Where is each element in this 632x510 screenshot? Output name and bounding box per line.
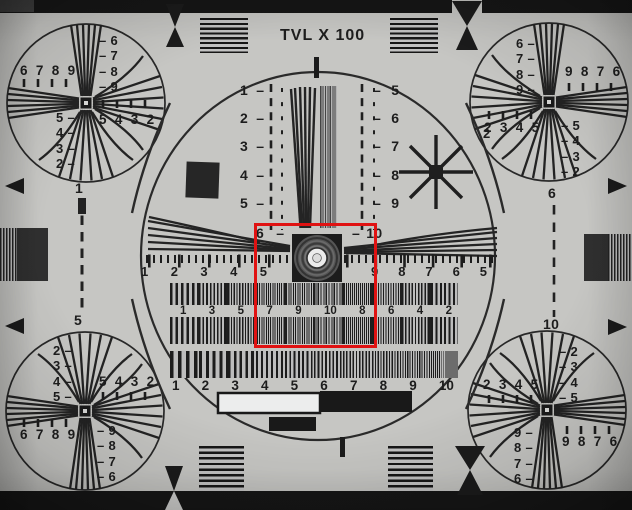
hyperbola-curve-label: 2 xyxy=(483,126,491,141)
corner-br-upper-vertical-scale: – 2 – 3 – 4 – 5 xyxy=(559,344,578,405)
bar-block xyxy=(429,283,458,305)
corner-tr-upper-horizontal-scale: 9 8 7 6 xyxy=(565,65,620,79)
bar-block xyxy=(400,283,429,305)
left-edge-top-label: 1 xyxy=(75,181,83,196)
corner-bl-upper-horizontal-scale: 5 4 3 2 xyxy=(99,375,154,389)
left-edge-stripes xyxy=(0,228,17,281)
bar-block xyxy=(400,317,429,344)
bar-block xyxy=(226,317,255,344)
corner-br-lower-vertical-scale: 9 – 8 – 7 – 6 – xyxy=(514,425,533,486)
starburst-pattern xyxy=(399,135,473,209)
right-edge-top-label: 6 xyxy=(548,186,556,201)
bottom-stripe-block-left xyxy=(199,446,244,492)
left-edge-solid-block xyxy=(17,228,48,281)
corner-tr-lower-horizontal-scale: 2 3 4 5 xyxy=(484,121,539,135)
left-edge-bottom-label: 5 xyxy=(74,313,82,328)
corner-bl-lower-horizontal-scale: 6 7 8 9 xyxy=(20,428,75,442)
bottom-stripe-block-right xyxy=(388,446,433,492)
corner-tl-lower-vertical-scale: 5 – 4 – 3 – 2 – xyxy=(56,110,75,171)
fine-vertical-wedge xyxy=(320,86,337,228)
corner-tl-upper-horizontal-scale: 6 7 8 9 xyxy=(20,64,75,78)
chart-title: TVL X 100 xyxy=(280,28,365,43)
corner-bl-lower-vertical-scale: – 9 – 8 – 7 – 6 xyxy=(97,423,116,484)
center-left-scale: 1 – 2 – 3 – 4 – 5 – xyxy=(240,76,264,217)
bar-block xyxy=(197,283,226,305)
bar-block xyxy=(170,283,197,305)
right-edge-bottom-label: 10 xyxy=(543,317,559,332)
top-stripe-block-left xyxy=(200,18,248,53)
corner-br-lower-horizontal-scale: 9 8 7 6 xyxy=(562,435,617,449)
top-stripe-block-right xyxy=(390,18,438,53)
bar-block xyxy=(170,317,197,344)
corner-bl-upper-vertical-scale: 2 – 3 – 4 – 5 – xyxy=(53,343,72,404)
frequency-sweep-bar xyxy=(170,351,458,378)
test-chart-view: TVL X 100 6 7 8 9 – 6 – 7 – 8 – 9 5 – 4 … xyxy=(0,0,632,510)
sweep-scale-numbers: 12345678910 xyxy=(172,378,454,393)
bar-block xyxy=(197,317,226,344)
corner-tl-lower-horizontal-scale: 5 4 3 2 xyxy=(99,113,154,127)
right-edge-stripes xyxy=(608,234,632,281)
corner-tr-lower-vertical-scale: – 5 – 4 – 3 – 2 xyxy=(561,118,580,179)
center-ruler-right-numbers: 98765 xyxy=(371,264,487,279)
corner-tl-upper-vertical-scale: – 6 – 7 – 8 – 9 xyxy=(99,33,118,94)
bar-block xyxy=(429,317,458,344)
corner-tr-upper-vertical-scale: 6 – 7 – 8 – 9 – xyxy=(516,36,535,97)
right-edge-solid-block xyxy=(584,234,608,281)
corner-br-upper-horizontal-scale: 2 3 4 5 xyxy=(483,378,538,392)
center-right-scale: – 5 – 6 – 7 – 8 – 9 xyxy=(373,76,399,217)
bar-block xyxy=(226,283,255,305)
center-ruler-left-numbers: 12345 xyxy=(141,264,267,279)
roi-selection-box[interactable] xyxy=(254,223,377,348)
